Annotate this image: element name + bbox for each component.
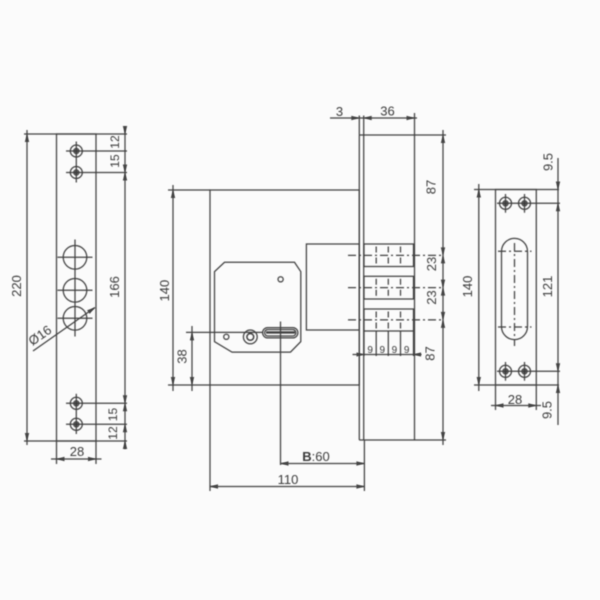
svg-text:87: 87: [424, 180, 439, 194]
svg-text:9.5: 9.5: [541, 153, 556, 171]
svg-text:9: 9: [404, 345, 410, 356]
svg-text:38: 38: [175, 349, 190, 363]
svg-text:15: 15: [106, 408, 120, 422]
svg-text:12: 12: [108, 135, 122, 149]
svg-text:140: 140: [157, 280, 172, 302]
svg-text:23: 23: [424, 290, 439, 304]
svg-text:12: 12: [106, 426, 120, 440]
svg-text:28: 28: [70, 444, 84, 459]
svg-text:220: 220: [9, 275, 24, 297]
svg-text:Ø16: Ø16: [26, 322, 55, 348]
svg-text:9.5: 9.5: [540, 401, 555, 419]
svg-text:87: 87: [423, 346, 438, 360]
svg-text:28: 28: [508, 392, 522, 407]
svg-text:140: 140: [460, 276, 475, 298]
svg-text:23: 23: [424, 257, 439, 271]
svg-text:110: 110: [278, 472, 299, 487]
svg-text:36: 36: [380, 104, 394, 119]
svg-text:9: 9: [367, 345, 373, 356]
svg-text:B:60: B:60: [302, 449, 329, 464]
svg-text:121: 121: [540, 276, 555, 298]
svg-text:9: 9: [380, 345, 386, 356]
svg-text:166: 166: [107, 276, 122, 298]
svg-text:3: 3: [336, 104, 343, 119]
svg-text:15: 15: [108, 154, 122, 168]
svg-text:9: 9: [392, 345, 398, 356]
